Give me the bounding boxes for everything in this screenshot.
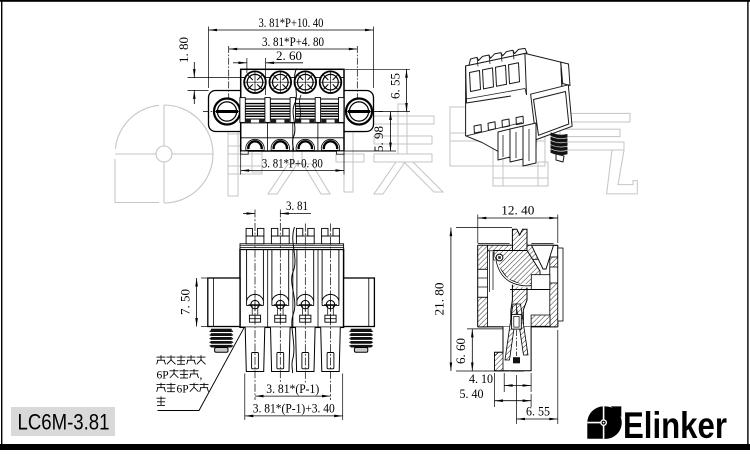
svg-text:3. 81*P+0. 80: 3. 81*P+0. 80 (262, 156, 323, 170)
svg-text:6P: 6P (157, 370, 169, 382)
svg-text:21. 80: 21. 80 (433, 283, 447, 316)
svg-text:3. 81*P+10. 40: 3. 81*P+10. 40 (259, 16, 324, 30)
svg-text:,: , (200, 370, 203, 382)
svg-text:Elinker: Elinker (623, 405, 727, 446)
svg-text:3. 81: 3. 81 (286, 199, 308, 213)
svg-text:2. 60: 2. 60 (276, 49, 302, 63)
svg-text:7. 50: 7. 50 (178, 289, 192, 315)
svg-text:3. 81*(P-1)+3. 40: 3. 81*(P-1)+3. 40 (253, 402, 335, 416)
svg-text:5. 98: 5. 98 (372, 126, 386, 152)
svg-text:3. 81*(P-1): 3. 81*(P-1) (266, 382, 319, 396)
svg-text:12. 40: 12. 40 (501, 204, 534, 218)
svg-text:6P: 6P (177, 383, 189, 395)
svg-text:5. 40: 5. 40 (460, 387, 484, 401)
svg-text:LC6M-3.81: LC6M-3.81 (18, 410, 110, 435)
svg-text:6. 60: 6. 60 (454, 338, 468, 364)
svg-text:1. 80: 1. 80 (177, 37, 191, 63)
svg-text:6. 55: 6. 55 (526, 405, 550, 419)
svg-text:4. 10: 4. 10 (469, 372, 493, 386)
svg-text:3. 81*P+4. 80: 3. 81*P+4. 80 (262, 35, 324, 49)
svg-text:6. 55: 6. 55 (389, 73, 403, 99)
